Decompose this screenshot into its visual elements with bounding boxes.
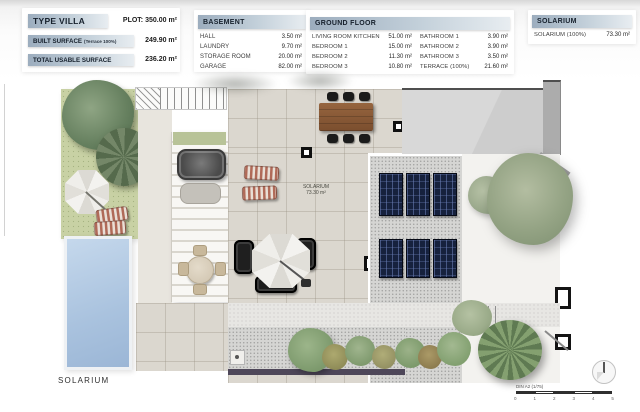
built-surface-note: (Terrace 100%) <box>84 39 116 44</box>
solarium-title: SOLARIUM <box>537 18 577 25</box>
solarium-header: SOLARIUM <box>532 15 632 28</box>
floor-title: SOLARIUM <box>58 376 109 385</box>
table-row: LAUNDRY 9.70 m² <box>200 44 302 50</box>
row-value: 10.80 m² <box>388 64 412 70</box>
table-row: BEDROOM 2 11.30 m² <box>312 54 412 60</box>
usable-surface-bar: TOTAL USABLE SURFACE <box>28 54 134 66</box>
scale-tick: 0 <box>514 396 517 401</box>
row-label: GARAGE <box>200 64 226 70</box>
scale-segment <box>554 391 573 394</box>
table-row: HALL 3.50 m² <box>200 34 302 40</box>
garden-lamp <box>230 350 245 365</box>
solar-panel <box>379 239 403 278</box>
scale-segment <box>593 391 612 394</box>
ground-floor-header: GROUND FLOOR <box>310 17 510 30</box>
row-value: 21.60 m² <box>484 64 508 70</box>
basement-table: BASEMENT HALL 3.50 m² LAUNDRY 9.70 m² ST… <box>194 10 310 72</box>
row-label: BATHROOM 2 <box>420 44 459 50</box>
chair <box>327 134 338 143</box>
villa-plan-page: TYPE VILLA PLOT: 350.00 m² BUILT SURFACE… <box>0 0 640 412</box>
scale-tick: 3 <box>572 396 575 401</box>
sun-lounger <box>242 185 277 200</box>
row-label: BATHROOM 3 <box>420 54 459 60</box>
chair <box>178 262 189 276</box>
table-row: BATHROOM 3 3.50 m² <box>420 54 508 60</box>
roof <box>402 88 543 155</box>
scale-segment <box>574 391 593 394</box>
row-label: STORAGE ROOM <box>200 54 251 60</box>
round-table <box>186 256 214 284</box>
ground-floor-table: GROUND FLOOR LIVING ROOM KITCHEN 51.00 m… <box>306 10 514 74</box>
planter-box <box>173 132 226 145</box>
floor-plan: SOLARIUM 73.30 m² SOLARIUM DIN A2 (1/75)… <box>0 80 640 412</box>
lower-terrace <box>136 303 228 371</box>
scale-tick: 5 <box>611 396 614 401</box>
roof-edge <box>543 80 561 155</box>
scale-text: DIN A2 (1/75) <box>516 384 543 389</box>
row-value: 15.00 m² <box>388 44 412 50</box>
row-value: 11.30 m² <box>389 54 412 60</box>
table-row: STORAGE ROOM 20.00 m² <box>200 54 302 60</box>
chair <box>193 284 207 295</box>
scale-tick: 4 <box>592 396 595 401</box>
ground-floor-title: GROUND FLOOR <box>315 20 376 27</box>
row-value: 73.30 m² <box>606 32 630 38</box>
bush <box>437 332 471 366</box>
header-strip: TYPE VILLA PLOT: 350.00 m² BUILT SURFACE… <box>0 0 640 80</box>
chair <box>215 262 226 276</box>
solar-panel <box>433 173 457 216</box>
bush <box>345 336 375 366</box>
table-row: BATHROOM 2 3.90 m² <box>420 44 508 50</box>
built-surface-label: BUILT SURFACE <box>33 38 82 45</box>
solar-panel <box>406 173 430 216</box>
chair <box>359 92 370 101</box>
lamp-dot <box>235 355 239 359</box>
summary-card: TYPE VILLA PLOT: 350.00 m² BUILT SURFACE… <box>22 8 180 72</box>
armchair <box>234 240 254 274</box>
row-label: LIVING ROOM KITCHEN <box>312 34 380 40</box>
sun-lounger <box>94 220 127 236</box>
row-label: BATHROOM 1 <box>420 34 459 40</box>
chair <box>359 134 370 143</box>
property-line <box>4 84 5 236</box>
area-label: SOLARIUM 73.30 m² <box>293 184 339 196</box>
row-label: BEDROOM 2 <box>312 54 348 60</box>
table-row: SOLARIUM (100%) 73.30 m² <box>534 32 630 38</box>
scale-tick: 1 <box>533 396 536 401</box>
plot-value: PLOT: 350.00 m² <box>123 17 177 24</box>
table-row: BATHROOM 1 3.90 m² <box>420 34 508 40</box>
row-value: 3.90 m² <box>488 44 508 50</box>
chair <box>193 245 207 256</box>
scale-segment <box>535 391 554 394</box>
spa-tub <box>177 149 226 180</box>
bath-tub <box>180 183 221 204</box>
scale-ticks: 0 1 2 3 4 5 <box>514 396 614 401</box>
row-value: 3.50 m² <box>282 34 302 40</box>
pool <box>67 239 129 367</box>
north-arrow-icon <box>592 360 616 384</box>
built-surface-value: 249.90 m² <box>145 37 177 44</box>
usable-surface-value: 236.20 m² <box>145 56 177 63</box>
solar-panel <box>406 239 430 278</box>
area-label-size: 73.30 m² <box>293 190 339 196</box>
row-label: TERRACE (100%) <box>420 64 469 70</box>
solarium-table: SOLARIUM SOLARIUM (100%) 73.30 m² <box>528 10 636 44</box>
sun-lounger <box>244 165 280 181</box>
chair <box>327 92 338 101</box>
scale-segment <box>516 391 535 394</box>
usable-surface-label: TOTAL USABLE SURFACE <box>33 57 111 64</box>
dining-table <box>319 103 373 131</box>
built-surface-bar: BUILT SURFACE (Terrace 100%) <box>28 35 134 47</box>
north-wedge <box>597 372 604 380</box>
row-value: 3.50 m² <box>488 54 508 60</box>
scale-tick: 2 <box>553 396 556 401</box>
tree <box>478 320 542 380</box>
row-value: 51.00 m² <box>388 34 412 40</box>
skylight-marker <box>301 147 312 158</box>
stairs-hatch <box>136 88 160 109</box>
tree <box>487 153 573 245</box>
table-row: TERRACE (100%) 21.60 m² <box>420 64 508 70</box>
table-row: LIVING ROOM KITCHEN 51.00 m² <box>312 34 412 40</box>
row-label: LAUNDRY <box>200 44 229 50</box>
bush <box>322 344 348 370</box>
terrace <box>228 89 403 153</box>
table-row: BEDROOM 1 15.00 m² <box>312 44 412 50</box>
basement-title: BASEMENT <box>203 19 245 26</box>
row-label: SOLARIUM (100%) <box>534 32 586 38</box>
chair <box>343 134 354 143</box>
tree-shadow <box>190 72 280 96</box>
row-value: 3.90 m² <box>488 34 508 40</box>
type-villa-title: TYPE VILLA <box>33 16 85 26</box>
solar-panel <box>379 173 403 216</box>
chair <box>343 92 354 101</box>
parasol-base <box>301 279 311 287</box>
row-value: 9.70 m² <box>282 44 302 50</box>
bush <box>372 345 396 369</box>
row-value: 20.00 m² <box>278 54 302 60</box>
row-label: HALL <box>200 34 215 40</box>
row-label: BEDROOM 1 <box>312 44 348 50</box>
scale-bar <box>516 391 612 394</box>
type-villa-bar: TYPE VILLA <box>28 14 108 28</box>
basement-header: BASEMENT <box>198 15 306 29</box>
tree-shadow <box>285 70 355 92</box>
solar-panel <box>433 239 457 278</box>
